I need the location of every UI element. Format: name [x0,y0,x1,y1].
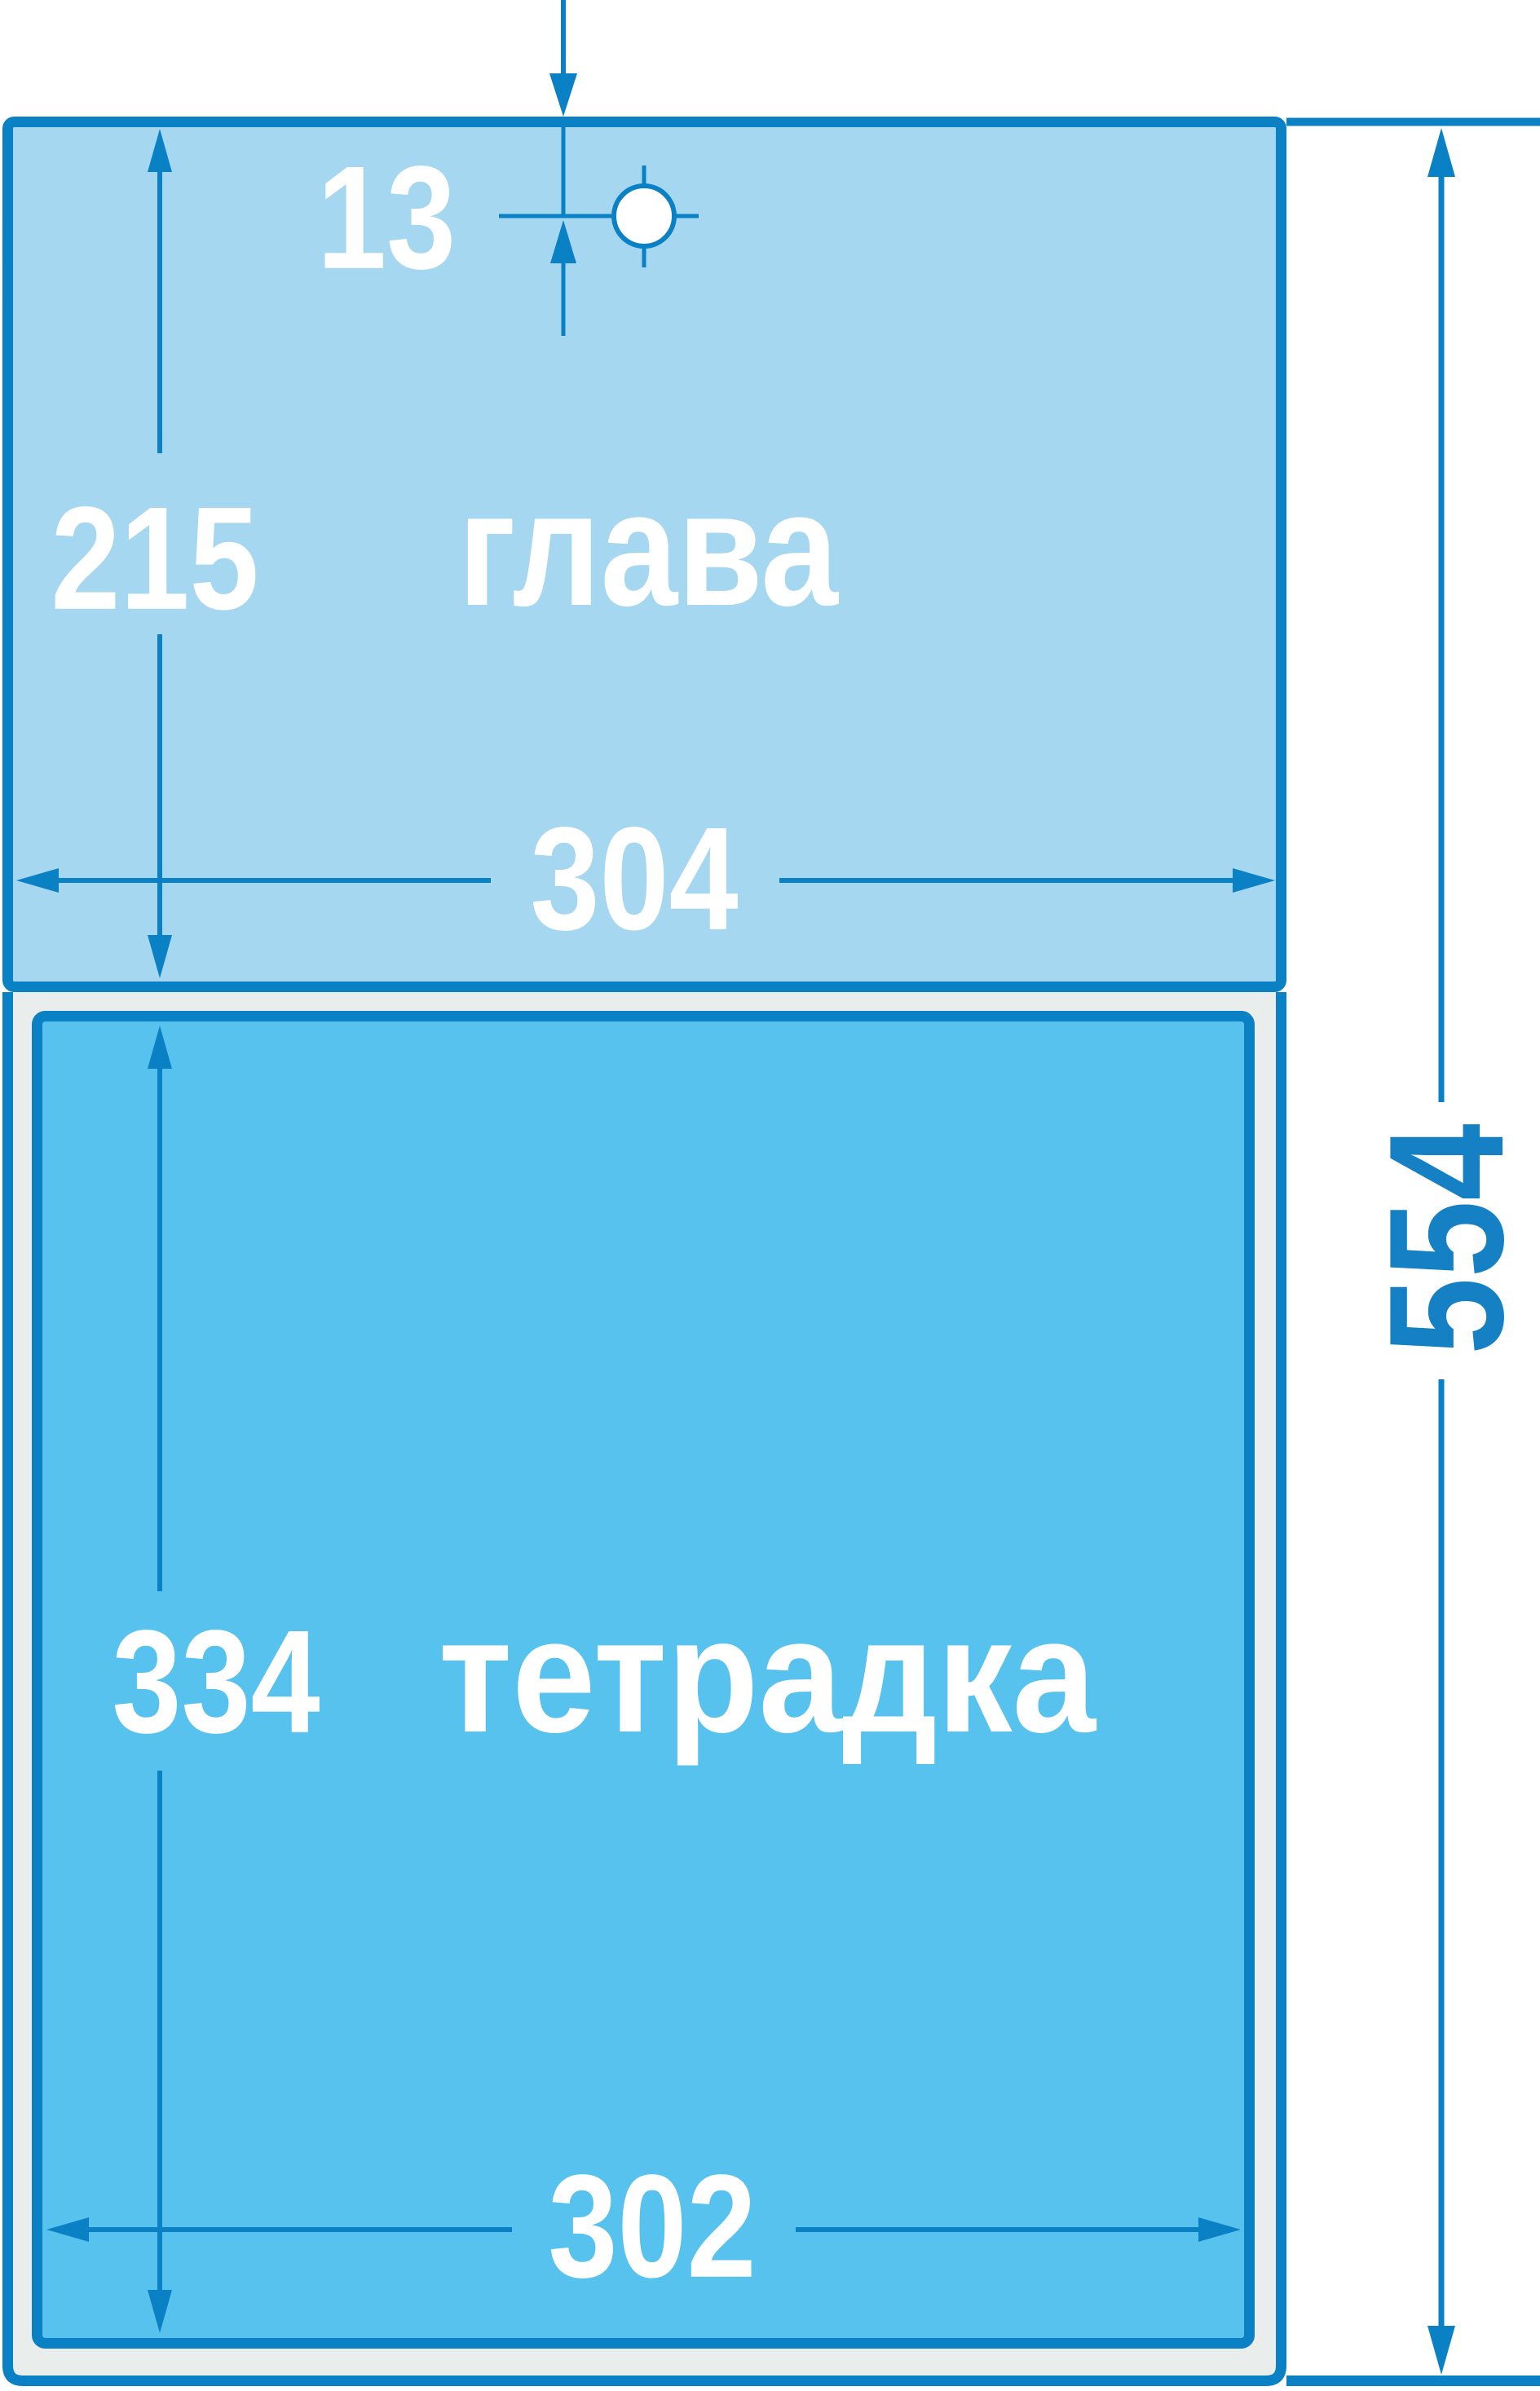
diagram-canvas: глава тетрадка 13 215 [0,0,1540,2391]
dimension-drawing: глава тетрадка 13 215 [0,0,1540,2391]
hole-offset-value: 13 [317,136,456,299]
hole-marker-icon [614,186,674,246]
head-label: глава [458,458,840,640]
head-width-value: 304 [530,797,738,960]
dimension-total-height: 554 [1286,122,1540,2381]
notebook-height-value: 334 [112,1600,320,1763]
head-height-value: 215 [51,477,258,640]
total-height-value: 554 [1356,1123,1538,1355]
total-height-arrow-down-icon [1427,2326,1455,2375]
hole-dim-arrow-down-icon [549,73,577,117]
notebook-width-value: 302 [548,2145,756,2308]
notebook-label: тетрадка [439,1584,1097,1767]
